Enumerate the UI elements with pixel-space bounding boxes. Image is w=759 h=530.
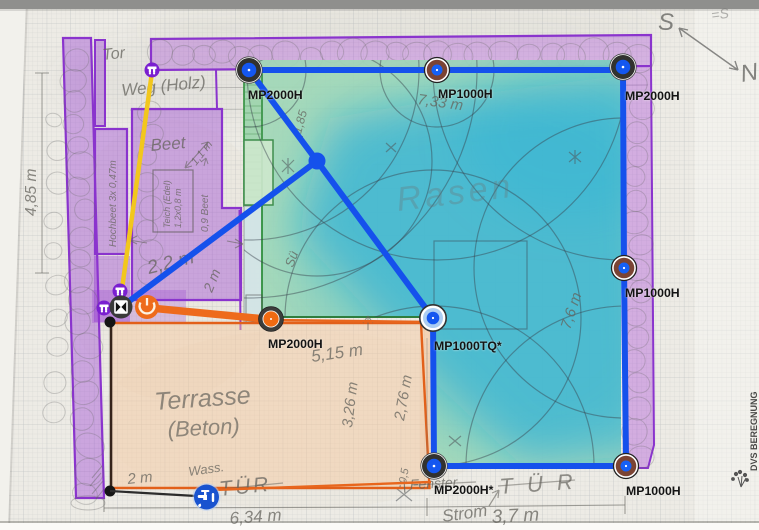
svg-text:N: N [738,58,759,88]
svg-text:MP1000H: MP1000H [438,87,493,101]
svg-text:S: S [658,9,674,36]
svg-text:4,85 m: 4,85 m [23,169,40,216]
svg-text:DVS BEREGNUNG: DVS BEREGNUNG [749,391,759,471]
svg-text:1,2x0,8 m: 1,2x0,8 m [173,188,183,228]
svg-text:0,9 Beet: 0,9 Beet [200,194,211,232]
svg-text:MP2000H: MP2000H [625,89,680,103]
svg-text:Teich (Edel): Teich (Edel) [162,180,172,228]
svg-text:6,34 m: 6,34 m [229,505,282,528]
svg-text:(Beton): (Beton) [167,413,240,442]
svg-text:Beet: Beet [150,133,188,155]
svg-text:2 m: 2 m [126,468,154,488]
svg-text:MP1000H: MP1000H [625,286,680,300]
svg-text:MP1000H: MP1000H [626,484,681,498]
svg-text:=S: =S [710,5,730,23]
svg-text:MP1000TQ*: MP1000TQ* [434,339,502,353]
svg-text:3,7 m: 3,7 m [491,505,540,528]
svg-text:Hochbeet 3x 0,47m: Hochbeet 3x 0,47m [108,160,119,247]
svg-text:Tor: Tor [102,45,127,64]
svg-text:MP2000H*: MP2000H* [434,483,494,497]
svg-text:MP2000H: MP2000H [248,88,303,102]
svg-text:MP2000H: MP2000H [268,337,323,351]
